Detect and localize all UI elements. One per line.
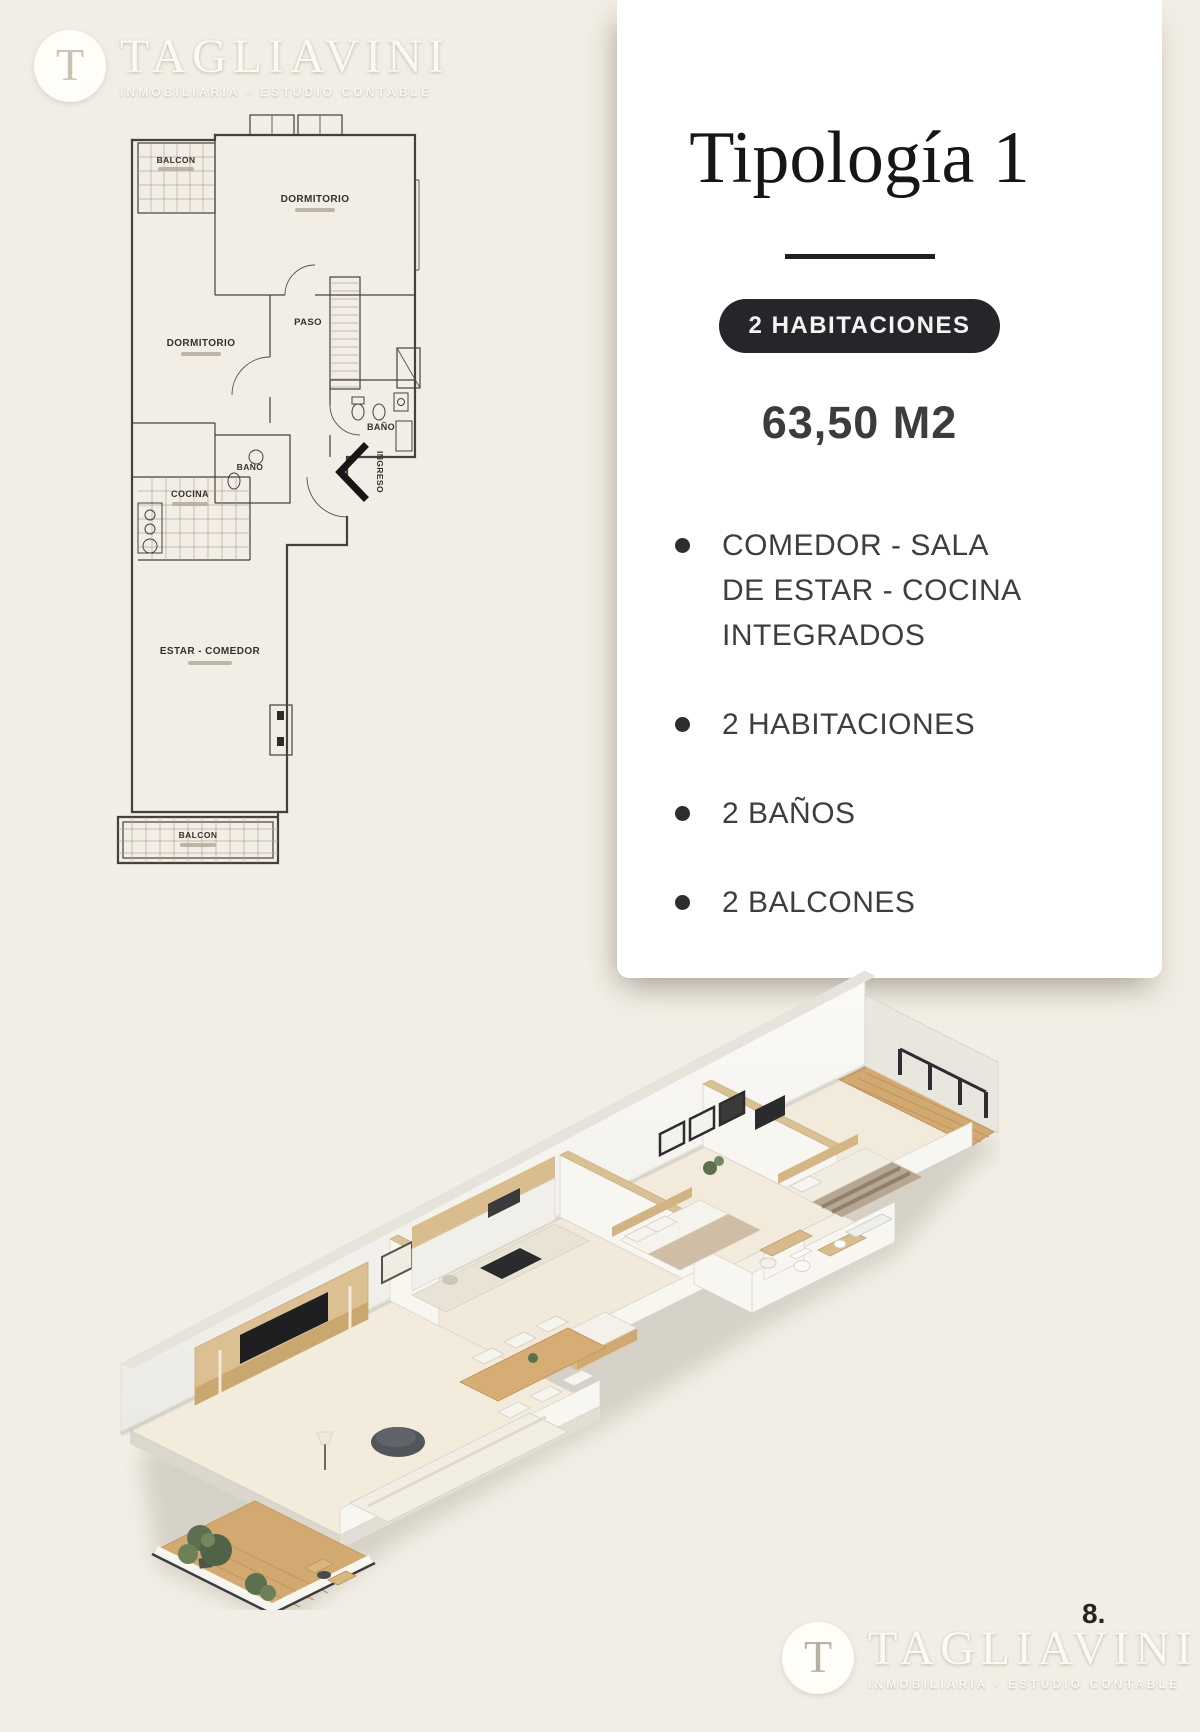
brand-name: TAGLIAVINI: [868, 1625, 1198, 1673]
label-balcony-top: BALCON: [157, 155, 196, 165]
page-title: Tipología 1: [617, 120, 1102, 198]
bullet-icon: [675, 717, 690, 732]
brand-text: TAGLIAVINI INMOBILIARIA - ESTUDIO CONTAB…: [868, 1625, 1198, 1691]
brand-monogram-icon: T: [782, 1622, 854, 1694]
feature-text: 2 BALCONES: [722, 880, 915, 925]
area-value: 63,50 M2: [617, 397, 1102, 449]
brand-initial: T: [56, 42, 84, 88]
bullet-icon: [675, 538, 690, 553]
label-bedroom-left: DORMITORIO: [167, 338, 236, 349]
feature-text: 2 HABITACIONES: [722, 702, 975, 747]
feature-list: COMEDOR - SALA DE ESTAR - COCINA INTEGRA…: [617, 523, 1102, 925]
label-bath-small: BAÑO: [237, 462, 264, 472]
feature-text: 2 BAÑOS: [722, 791, 856, 836]
bullet-icon: [675, 895, 690, 910]
feature-text: COMEDOR - SALA DE ESTAR - COCINA INTEGRA…: [722, 523, 1027, 658]
feature-item: 2 HABITACIONES: [675, 702, 1102, 747]
feature-item: 2 BAÑOS: [675, 791, 1102, 836]
floorplan-fixtures: [138, 393, 412, 553]
brand-initial: T: [804, 1634, 832, 1680]
brand-logo-top: T TAGLIAVINI INMOBILIARIA - ESTUDIO CONT…: [34, 30, 450, 102]
label-balcony-bottom: BALCON: [179, 830, 218, 840]
floorplan-labels: BALCON DORMITORIO PASO DORMITORIO BAÑO B…: [157, 155, 395, 847]
label-bath-right: BAÑO: [367, 422, 395, 432]
label-living: ESTAR - COMEDOR: [160, 646, 261, 657]
label-bedroom-top: DORMITORIO: [281, 194, 350, 205]
feature-item: COMEDOR - SALA DE ESTAR - COCINA INTEGRA…: [675, 523, 1102, 658]
floorplan-walls: [118, 115, 420, 863]
typology-card: Tipología 1 2 HABITACIONES 63,50 M2 COME…: [617, 0, 1162, 978]
floorplan-entry-arrow: [340, 447, 364, 497]
rooms-badge: 2 HABITACIONES: [719, 299, 1001, 353]
brand-text: TAGLIAVINI INMOBILIARIA - ESTUDIO CONTAB…: [120, 33, 450, 99]
brand-tagline: INMOBILIARIA - ESTUDIO CONTABLE: [868, 1677, 1198, 1691]
label-entry: INGRESO: [375, 451, 385, 493]
label-kitchen: COCINA: [171, 489, 209, 499]
feature-item: 2 BALCONES: [675, 880, 1102, 925]
brand-logo-bottom: T TAGLIAVINI INMOBILIARIA - ESTUDIO CONT…: [782, 1622, 1198, 1694]
brand-name: TAGLIAVINI: [120, 33, 450, 81]
bullet-icon: [675, 806, 690, 821]
brand-tagline: INMOBILIARIA - ESTUDIO CONTABLE: [120, 85, 450, 99]
label-hall: PASO: [294, 317, 322, 328]
brand-monogram-icon: T: [34, 30, 106, 102]
floorplan-2d: BALCON DORMITORIO PASO DORMITORIO BAÑO B…: [110, 105, 450, 875]
render-3d-floorplan: [100, 950, 1000, 1610]
